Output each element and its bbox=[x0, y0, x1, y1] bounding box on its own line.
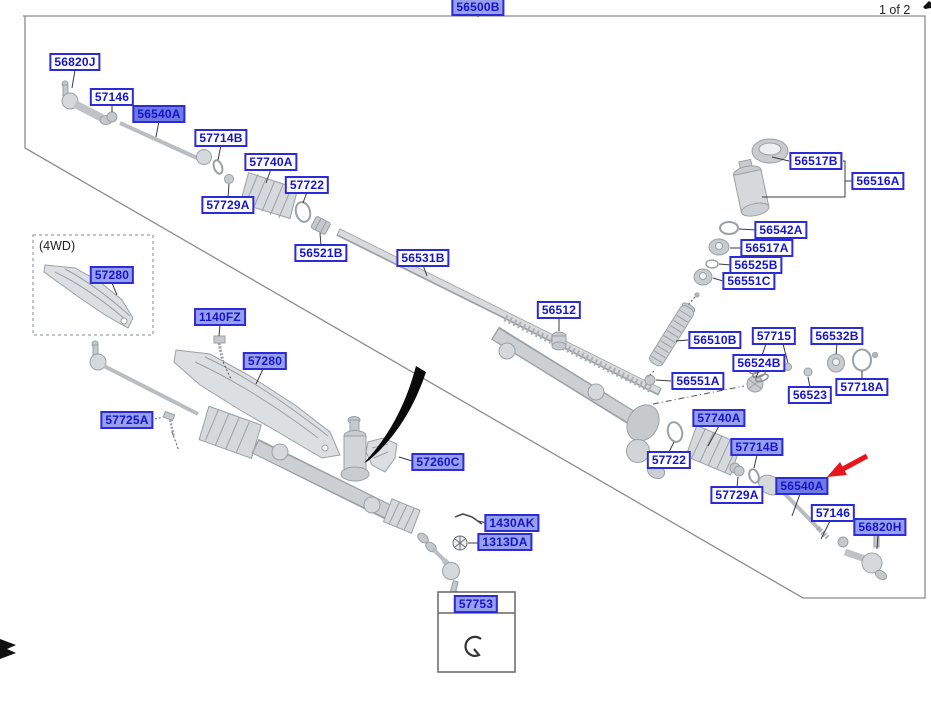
part-label-56521B[interactable]: 56521B bbox=[294, 244, 347, 262]
part-label-57725A[interactable]: 57725A bbox=[100, 411, 153, 429]
part-label-56516A[interactable]: 56516A bbox=[851, 172, 904, 190]
part-label-57146[interactable]: 57146 bbox=[811, 504, 855, 522]
part-label-57729A[interactable]: 57729A bbox=[710, 486, 763, 504]
part-label-57280[interactable]: 57280 bbox=[243, 352, 287, 370]
part-label-56540A[interactable]: 56540A bbox=[132, 105, 185, 123]
part-label-56510B[interactable]: 56510B bbox=[688, 331, 741, 349]
part-label-56551C[interactable]: 56551C bbox=[722, 272, 775, 290]
variant-note-4wd: (4WD) bbox=[39, 239, 75, 253]
part-label-56531B[interactable]: 56531B bbox=[396, 249, 449, 267]
part-label-56517B[interactable]: 56517B bbox=[789, 152, 842, 170]
part-label-56500B[interactable]: 56500B bbox=[451, 0, 504, 16]
part-label-1140FZ[interactable]: 1140FZ bbox=[194, 308, 246, 326]
labels-layer: 56500B56820J5714656540A57714B57740A57722… bbox=[0, 0, 931, 708]
part-label-57260C[interactable]: 57260C bbox=[411, 453, 464, 471]
part-label-56524B[interactable]: 56524B bbox=[732, 354, 785, 372]
part-label-1430AK[interactable]: 1430AK bbox=[484, 514, 539, 532]
parts-diagram-stage: 56500B56820J5714656540A57714B57740A57722… bbox=[0, 0, 931, 708]
part-label-57729A[interactable]: 57729A bbox=[201, 196, 254, 214]
part-label-56540A[interactable]: 56540A bbox=[775, 477, 828, 495]
part-label-56523[interactable]: 56523 bbox=[788, 386, 832, 404]
part-label-56512[interactable]: 56512 bbox=[537, 301, 581, 319]
part-label-1313DA[interactable]: 1313DA bbox=[477, 533, 532, 551]
part-label-57740A[interactable]: 57740A bbox=[692, 409, 745, 427]
part-label-57280[interactable]: 57280 bbox=[90, 266, 134, 284]
part-label-57722[interactable]: 57722 bbox=[647, 451, 691, 469]
part-label-56551A[interactable]: 56551A bbox=[671, 372, 724, 390]
part-label-56542A[interactable]: 56542A bbox=[754, 221, 807, 239]
part-label-57714B[interactable]: 57714B bbox=[194, 129, 247, 147]
part-label-57146[interactable]: 57146 bbox=[90, 88, 134, 106]
page-indicator: 1 of 2 bbox=[879, 3, 910, 17]
part-label-56820J[interactable]: 56820J bbox=[49, 53, 100, 71]
part-label-57740A[interactable]: 57740A bbox=[244, 153, 297, 171]
part-label-57718A[interactable]: 57718A bbox=[835, 378, 888, 396]
part-label-57753[interactable]: 57753 bbox=[454, 595, 498, 613]
part-label-56532B[interactable]: 56532B bbox=[810, 327, 863, 345]
part-label-56517A[interactable]: 56517A bbox=[740, 239, 793, 257]
part-label-57715[interactable]: 57715 bbox=[752, 327, 796, 345]
part-label-56820H[interactable]: 56820H bbox=[853, 518, 906, 536]
part-label-57722[interactable]: 57722 bbox=[285, 176, 329, 194]
part-label-57714B[interactable]: 57714B bbox=[730, 438, 783, 456]
